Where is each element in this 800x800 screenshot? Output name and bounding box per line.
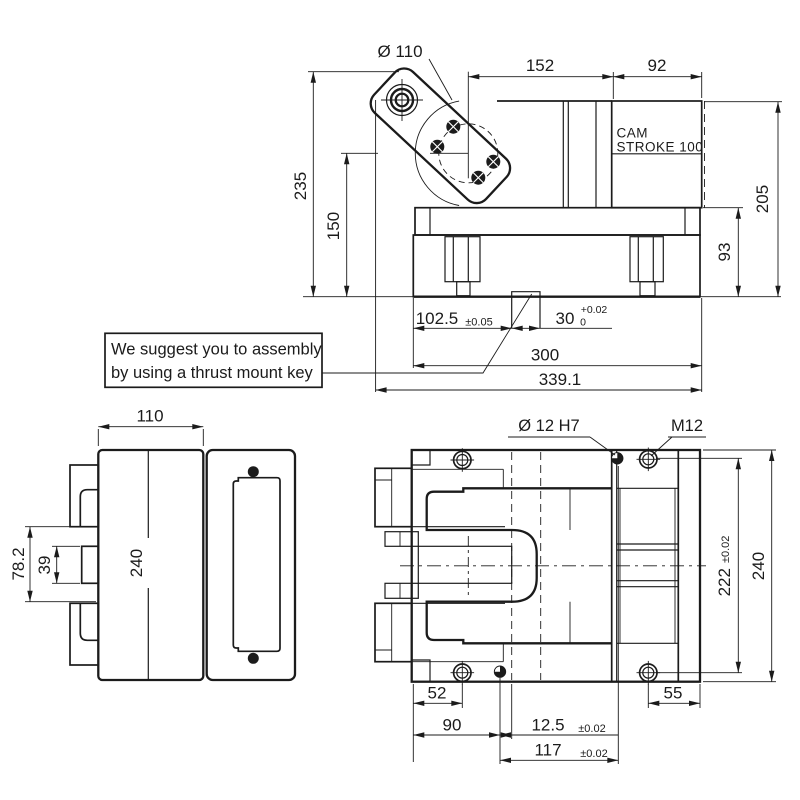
tol-30-lower: 0: [580, 317, 586, 329]
tol-12-5: ±0.02: [578, 723, 605, 735]
dim-93: 93: [715, 243, 734, 262]
plug-hole-icon: [248, 466, 259, 477]
dim-240-front: 240: [749, 552, 768, 580]
top-view: CAM STROKE 100: [291, 42, 782, 392]
note-line2: by using a thrust mount key: [111, 364, 314, 382]
dim-52: 52: [428, 684, 447, 703]
dia-110-leader: [429, 59, 452, 100]
dim-55: 55: [664, 684, 683, 703]
dim-110: 110: [136, 407, 163, 426]
dim-300: 300: [531, 346, 559, 365]
tol-102-5: ±0.05: [465, 317, 492, 329]
assembly-note: We suggest you to assembly by using a th…: [105, 294, 532, 387]
cam-stroke-label-line2: STROKE 100: [617, 140, 704, 155]
dowel-callout: Ø 12 H7: [518, 417, 579, 435]
cam-stroke-label-line1: CAM: [617, 126, 649, 141]
dim-150: 150: [324, 212, 343, 240]
thread-callout: M12: [671, 417, 703, 435]
socket-screw-icon: [451, 448, 475, 472]
cad-drawing-page: CAM STROKE 100: [0, 0, 800, 800]
tol-30-upper: +0.02: [581, 304, 608, 316]
front-arms: [375, 468, 412, 661]
screw-icon: [471, 171, 485, 185]
housing: [497, 101, 612, 208]
tol-117: ±0.02: [580, 748, 607, 760]
dia-110-label: Ø 110: [377, 42, 422, 61]
screw-icon: [430, 140, 444, 154]
dim-222: 222±0.02: [715, 536, 734, 597]
dim-205: 205: [753, 185, 772, 213]
side-main-block: [98, 450, 203, 680]
dim-92: 92: [648, 56, 667, 75]
top-plate: [415, 208, 700, 235]
dim-78-2: 78.2: [9, 547, 28, 580]
side-view: 240 110 78.2 39: [9, 407, 295, 681]
cam-plate: [365, 63, 515, 208]
side-view-dimensions: 110 78.2 39: [9, 407, 203, 602]
top-view-dimensions: Ø 110 152 92 235 150 205 93: [291, 42, 782, 392]
note-line1: We suggest you to assembly: [111, 341, 322, 359]
tongue: [418, 546, 511, 583]
technical-drawing-canvas: CAM STROKE 100: [0, 0, 800, 800]
dim-235: 235: [291, 172, 310, 200]
dim-339-1: 339.1: [539, 370, 582, 389]
dim-30: 30: [556, 309, 575, 328]
dim-39: 39: [35, 556, 54, 575]
dim-240-side: 240: [127, 549, 146, 577]
screw-icon: [486, 155, 500, 169]
cam-slider: CAM STROKE 100: [612, 101, 705, 208]
dim-117: 117: [534, 741, 561, 760]
pivot-bearing: [381, 79, 423, 121]
dim-90: 90: [443, 716, 462, 735]
dim-12-5: 12.5: [531, 716, 564, 735]
side-face-plate: [207, 450, 295, 680]
dim-102-5: 102.5: [416, 309, 459, 328]
plug-hole-icon: [248, 653, 259, 664]
dim-152: 152: [526, 56, 554, 75]
dowel-hole-icon: [494, 666, 505, 677]
note-leader: [322, 294, 532, 373]
screw-icon: [446, 120, 460, 134]
side-arms: [70, 465, 98, 665]
front-view: Ø 12 H7 M12 222±0.02 240 5: [375, 417, 776, 764]
